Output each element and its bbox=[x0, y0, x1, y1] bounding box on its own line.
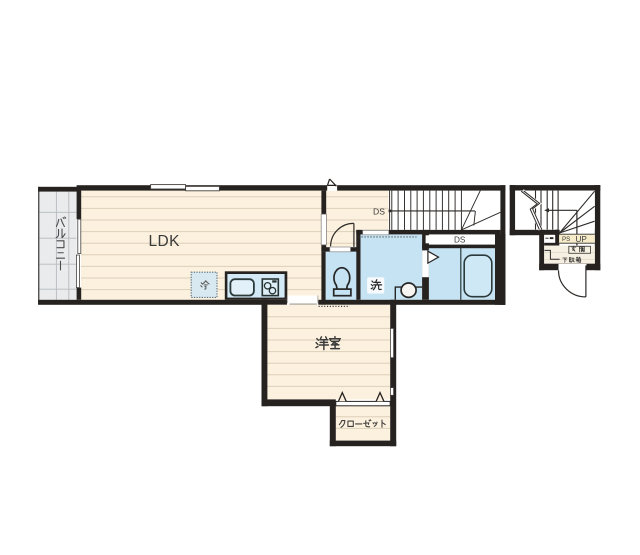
svg-text:LDK: LDK bbox=[149, 233, 181, 250]
svg-text:PS: PS bbox=[562, 236, 570, 243]
svg-text:UP: UP bbox=[576, 235, 588, 244]
svg-text:DS: DS bbox=[373, 207, 385, 217]
svg-text:DS: DS bbox=[454, 235, 466, 244]
